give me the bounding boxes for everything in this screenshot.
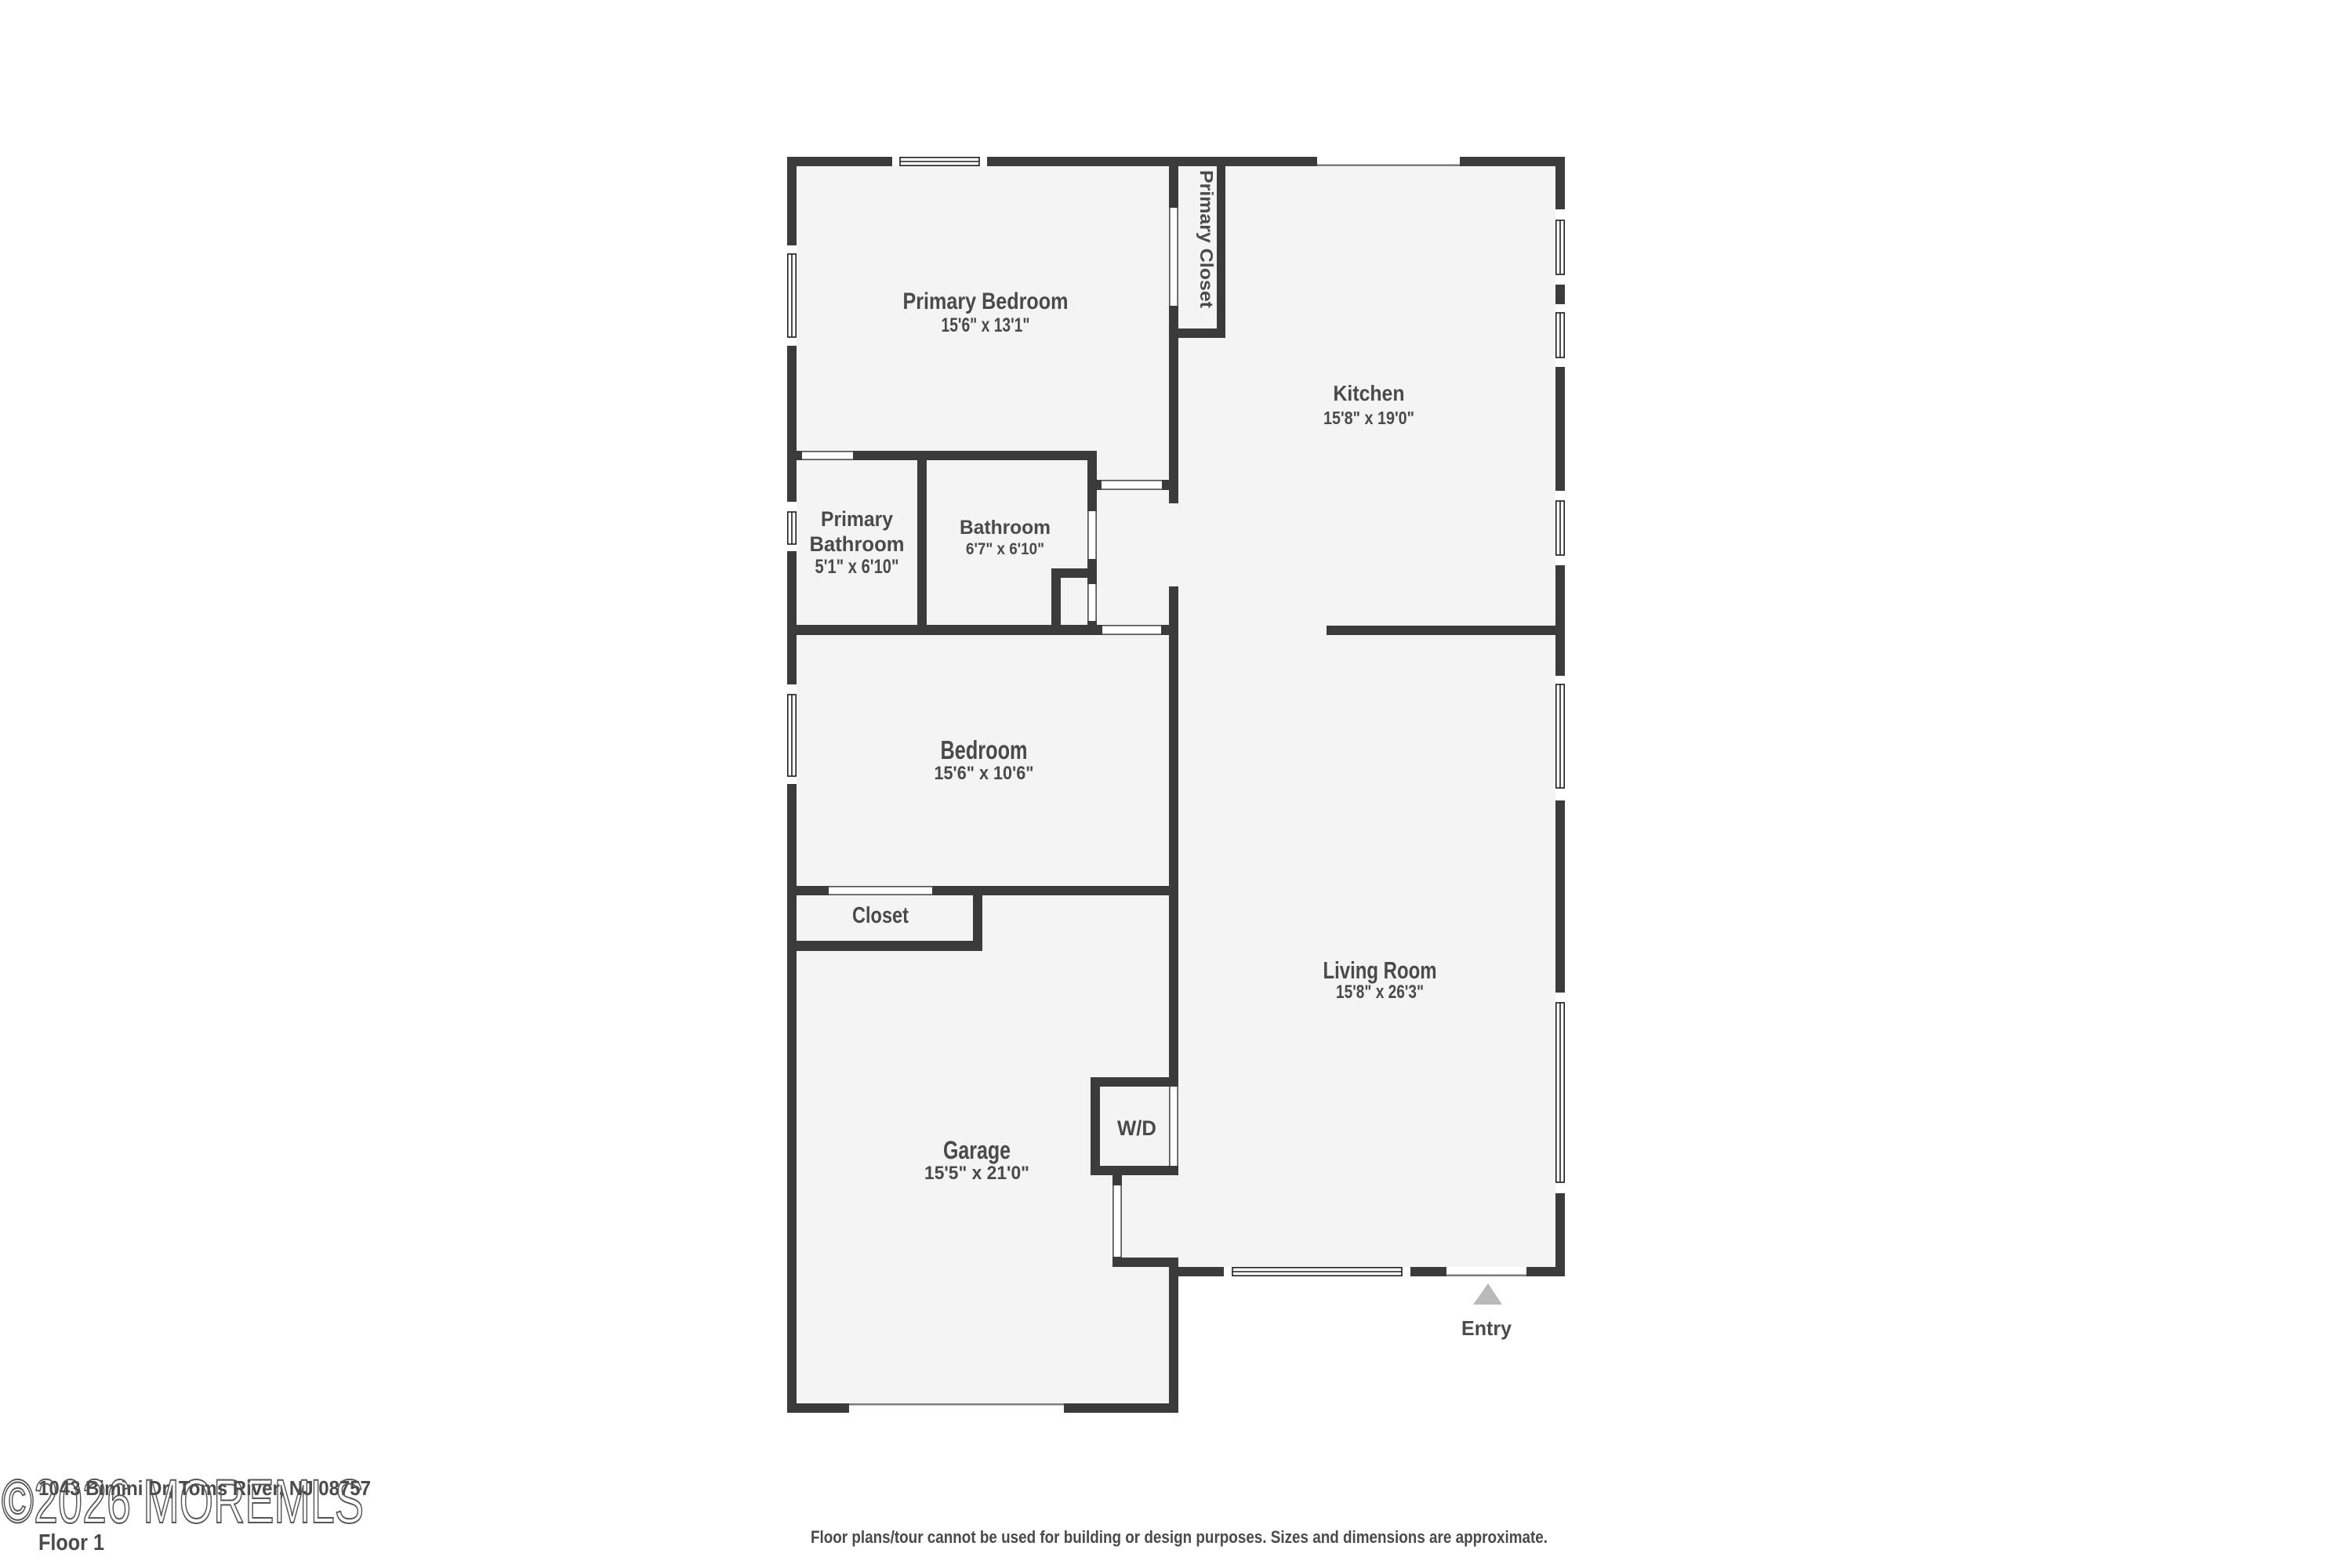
svg-text:Floor 1: Floor 1	[38, 1530, 104, 1555]
svg-text:Primary: Primary	[821, 507, 893, 531]
svg-text:15'8" x 19'0": 15'8" x 19'0"	[1323, 408, 1414, 428]
svg-text:Floor plans/tour cannot be use: Floor plans/tour cannot be used for buil…	[811, 1527, 1548, 1547]
svg-text:6'7" x 6'10": 6'7" x 6'10"	[966, 540, 1044, 558]
svg-text:©2026 MOREMLS: ©2026 MOREMLS	[2, 1466, 364, 1536]
svg-text:Closet: Closet	[852, 903, 909, 928]
svg-text:W/D: W/D	[1117, 1116, 1156, 1140]
svg-text:Garage: Garage	[943, 1136, 1011, 1164]
svg-text:15'6" x 10'6": 15'6" x 10'6"	[935, 763, 1034, 784]
svg-text:Kitchen: Kitchen	[1334, 381, 1405, 405]
svg-text:15'6" x 13'1": 15'6" x 13'1"	[942, 314, 1030, 336]
svg-text:Primary Bedroom: Primary Bedroom	[903, 289, 1069, 314]
svg-text:Bathroom: Bathroom	[810, 532, 905, 556]
svg-text:15'8" x 26'3": 15'8" x 26'3"	[1336, 982, 1424, 1003]
svg-text:Bedroom: Bedroom	[941, 735, 1028, 764]
svg-text:Living Room: Living Room	[1323, 956, 1437, 984]
svg-text:Primary Closet: Primary Closet	[1196, 170, 1217, 308]
svg-text:Bathroom: Bathroom	[960, 517, 1051, 539]
svg-text:Entry: Entry	[1461, 1316, 1512, 1340]
svg-text:5'1" x 6'10": 5'1" x 6'10"	[815, 556, 899, 578]
svg-text:15'5" x 21'0": 15'5" x 21'0"	[924, 1163, 1029, 1184]
